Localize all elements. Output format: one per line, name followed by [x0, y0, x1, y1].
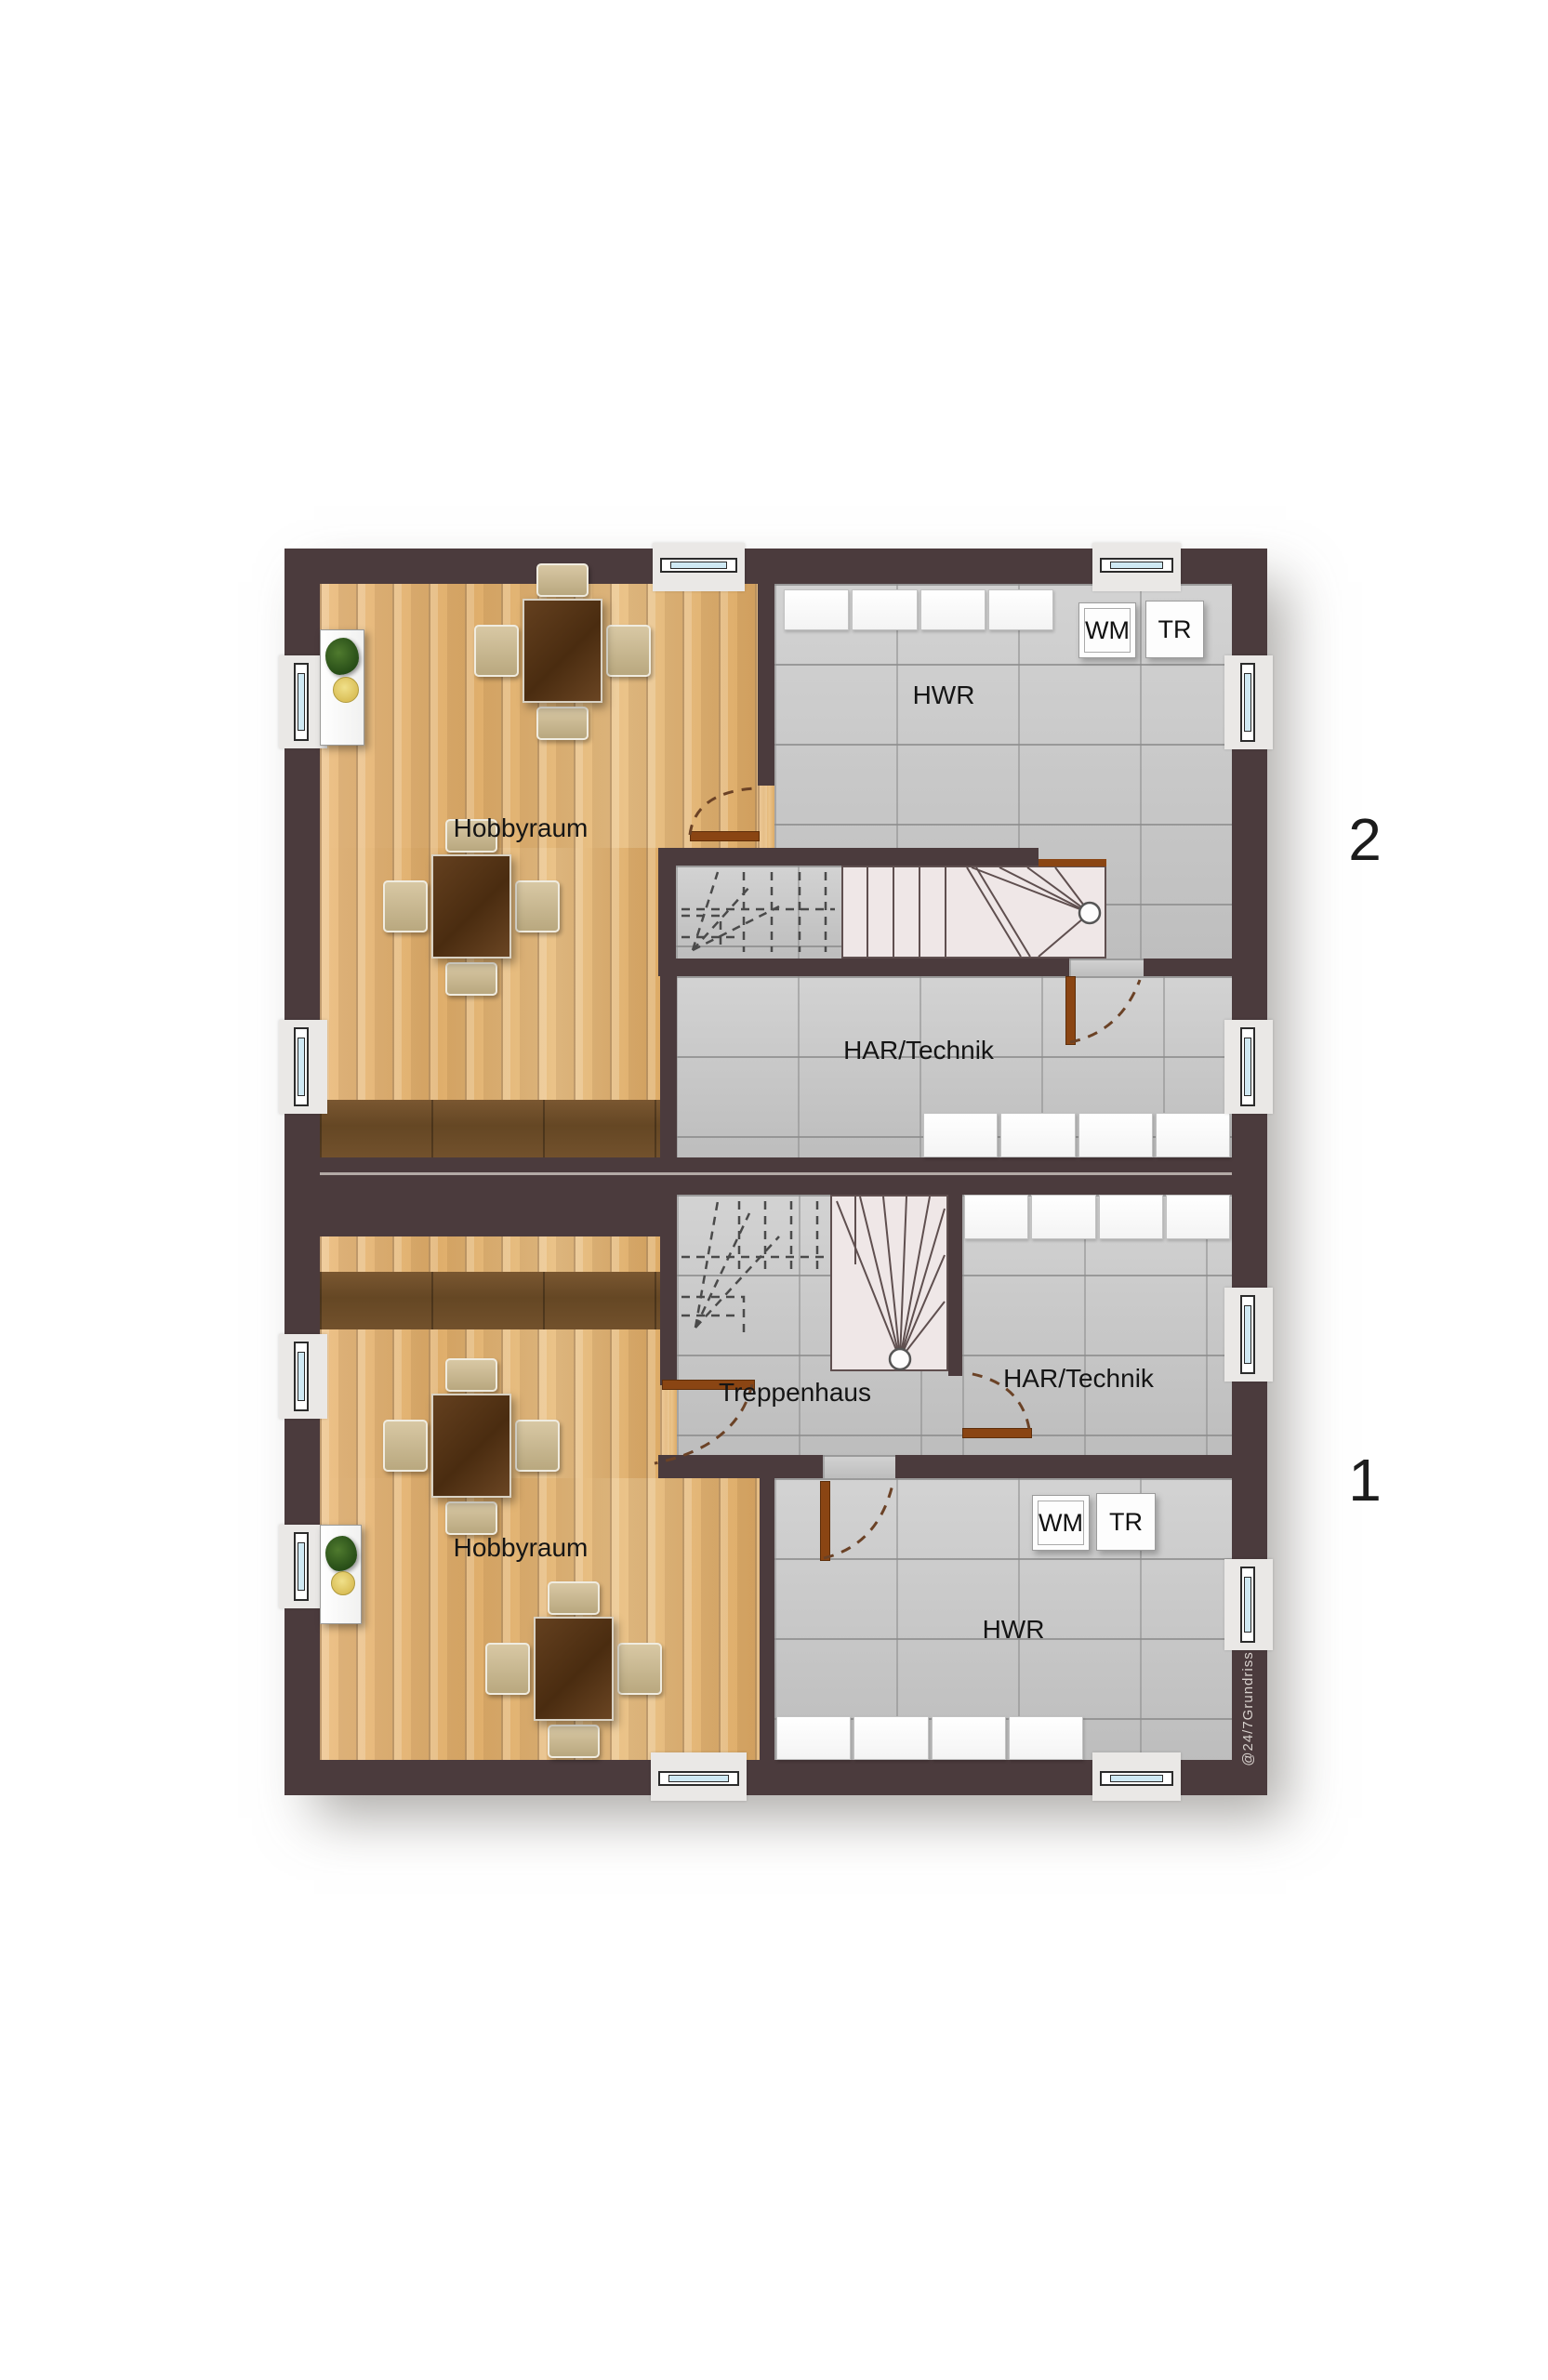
- party-wall-b: [320, 1195, 677, 1236]
- wall-stair-bottom-upper-b: [1144, 959, 1232, 976]
- unit-marker-2: 2: [1348, 805, 1382, 874]
- room-label-har-lower: HAR/Technik: [1003, 1364, 1154, 1394]
- storage-box: [1078, 1113, 1153, 1157]
- storage-box: [1000, 1113, 1075, 1157]
- wall-stair-left-upper: [658, 848, 676, 976]
- storage-box: [988, 589, 1053, 630]
- chair: [548, 1725, 600, 1758]
- chair: [536, 707, 589, 740]
- storage-box: [932, 1716, 1006, 1760]
- storage-row-har-lower: [964, 1195, 1230, 1239]
- plant-icon: [325, 638, 359, 675]
- staircase-upper: [841, 866, 1106, 959]
- party-wall-separation-line: [320, 1172, 1232, 1175]
- door-gap-hwr-lower: [823, 1455, 895, 1478]
- storage-row-hwr-upper: [784, 589, 1053, 630]
- storage-box: [776, 1716, 851, 1760]
- storage-box: [1166, 1195, 1230, 1239]
- storage-box: [1009, 1716, 1083, 1760]
- chair: [383, 1420, 428, 1472]
- storage-row-hwr-lower: [776, 1716, 1083, 1760]
- storage-box: [852, 589, 917, 630]
- storage-box: [853, 1716, 928, 1760]
- chair: [617, 1643, 662, 1695]
- window: [1240, 663, 1255, 742]
- unit-marker-1: 1: [1348, 1446, 1382, 1514]
- plant-icon: [325, 1536, 357, 1571]
- door-leaf: [690, 831, 760, 841]
- wall-stairhall-bottom-b: [895, 1455, 1232, 1478]
- staircase-lower: [830, 1195, 948, 1371]
- washing-machine-upper: WM: [1078, 602, 1136, 658]
- window: [1240, 1027, 1255, 1106]
- window: [294, 1342, 309, 1411]
- plant-pot-icon: [331, 1571, 355, 1595]
- chair: [606, 625, 651, 677]
- chair: [485, 1643, 530, 1695]
- floor-hobbyraum-lower-darkstrip: [320, 1272, 660, 1329]
- window: [294, 1027, 309, 1106]
- door-gap-har-upper: [1069, 959, 1144, 976]
- washing-machine-label: WM: [1039, 1509, 1083, 1538]
- storage-box: [920, 589, 986, 630]
- floor-hobbyraum-lower-top: [320, 1236, 660, 1272]
- wall-hobby-hwr-lower: [760, 1478, 774, 1760]
- chair: [445, 962, 497, 996]
- wall-stair-left-lower: [660, 1195, 677, 1385]
- storage-row-har-upper: [923, 1113, 1230, 1157]
- storage-box: [1156, 1113, 1230, 1157]
- door-leaf: [1065, 976, 1076, 1045]
- chair: [515, 880, 560, 932]
- chair: [383, 880, 428, 932]
- room-label-hwr-upper: HWR: [913, 681, 975, 710]
- dryer-upper: TR: [1145, 601, 1204, 658]
- window: [658, 1771, 739, 1786]
- window: [1100, 1771, 1173, 1786]
- dryer-label: TR: [1109, 1508, 1143, 1537]
- stair-edge-bar-upper: [1039, 859, 1106, 866]
- wall-stair-bottom-upper-a: [658, 959, 1069, 976]
- door-gap-hobbyraum-upper: [758, 786, 774, 848]
- wall-hobby-hwr-upper: [758, 584, 774, 786]
- door-leaf: [962, 1428, 1032, 1438]
- chair: [536, 563, 589, 597]
- party-wall-a: [320, 1157, 1232, 1195]
- storage-box: [1099, 1195, 1163, 1239]
- room-label-hobbyraum-lower: Hobbyraum: [454, 1533, 589, 1563]
- wall-stair-right-lower: [948, 1195, 962, 1376]
- room-label-har-upper: HAR/Technik: [843, 1036, 994, 1065]
- room-label-hobbyraum-upper: Hobbyraum: [454, 813, 589, 843]
- wall-stair-top-upper: [658, 848, 1039, 866]
- floor-hobbyraum-upper-darkstrip: [320, 1100, 660, 1157]
- table: [523, 599, 602, 703]
- dryer-label: TR: [1158, 615, 1192, 644]
- window: [1100, 558, 1173, 573]
- window: [1240, 1295, 1255, 1374]
- plant-pot-icon: [333, 677, 359, 703]
- room-label-hwr-lower: HWR: [983, 1615, 1045, 1645]
- window: [294, 1532, 309, 1601]
- door-gap-hobbyraum-lower: [660, 1385, 677, 1455]
- chair: [548, 1581, 600, 1615]
- chair: [515, 1420, 560, 1472]
- wall-hobby-har-upper: [660, 976, 677, 1157]
- floorplan-canvas: WM TR WM TR: [0, 0, 1548, 2380]
- dryer-lower: TR: [1096, 1493, 1156, 1551]
- wall-stairhall-bottom-a: [658, 1455, 823, 1478]
- room-label-treppenhaus-lower: Treppenhaus: [719, 1378, 871, 1408]
- window: [660, 558, 737, 573]
- table: [431, 1394, 511, 1498]
- chair: [474, 625, 519, 677]
- storage-box: [784, 589, 849, 630]
- chair: [445, 1501, 497, 1535]
- window: [294, 663, 309, 741]
- table: [534, 1617, 614, 1721]
- door-leaf: [820, 1481, 830, 1561]
- table: [431, 854, 511, 959]
- storage-box: [923, 1113, 998, 1157]
- storage-box: [1031, 1195, 1095, 1239]
- chair: [445, 1358, 497, 1392]
- storage-box: [964, 1195, 1028, 1239]
- watermark: @24/7Grundriss: [1240, 1630, 1259, 1788]
- washing-machine-lower: WM: [1032, 1495, 1090, 1551]
- washing-machine-label: WM: [1085, 616, 1130, 645]
